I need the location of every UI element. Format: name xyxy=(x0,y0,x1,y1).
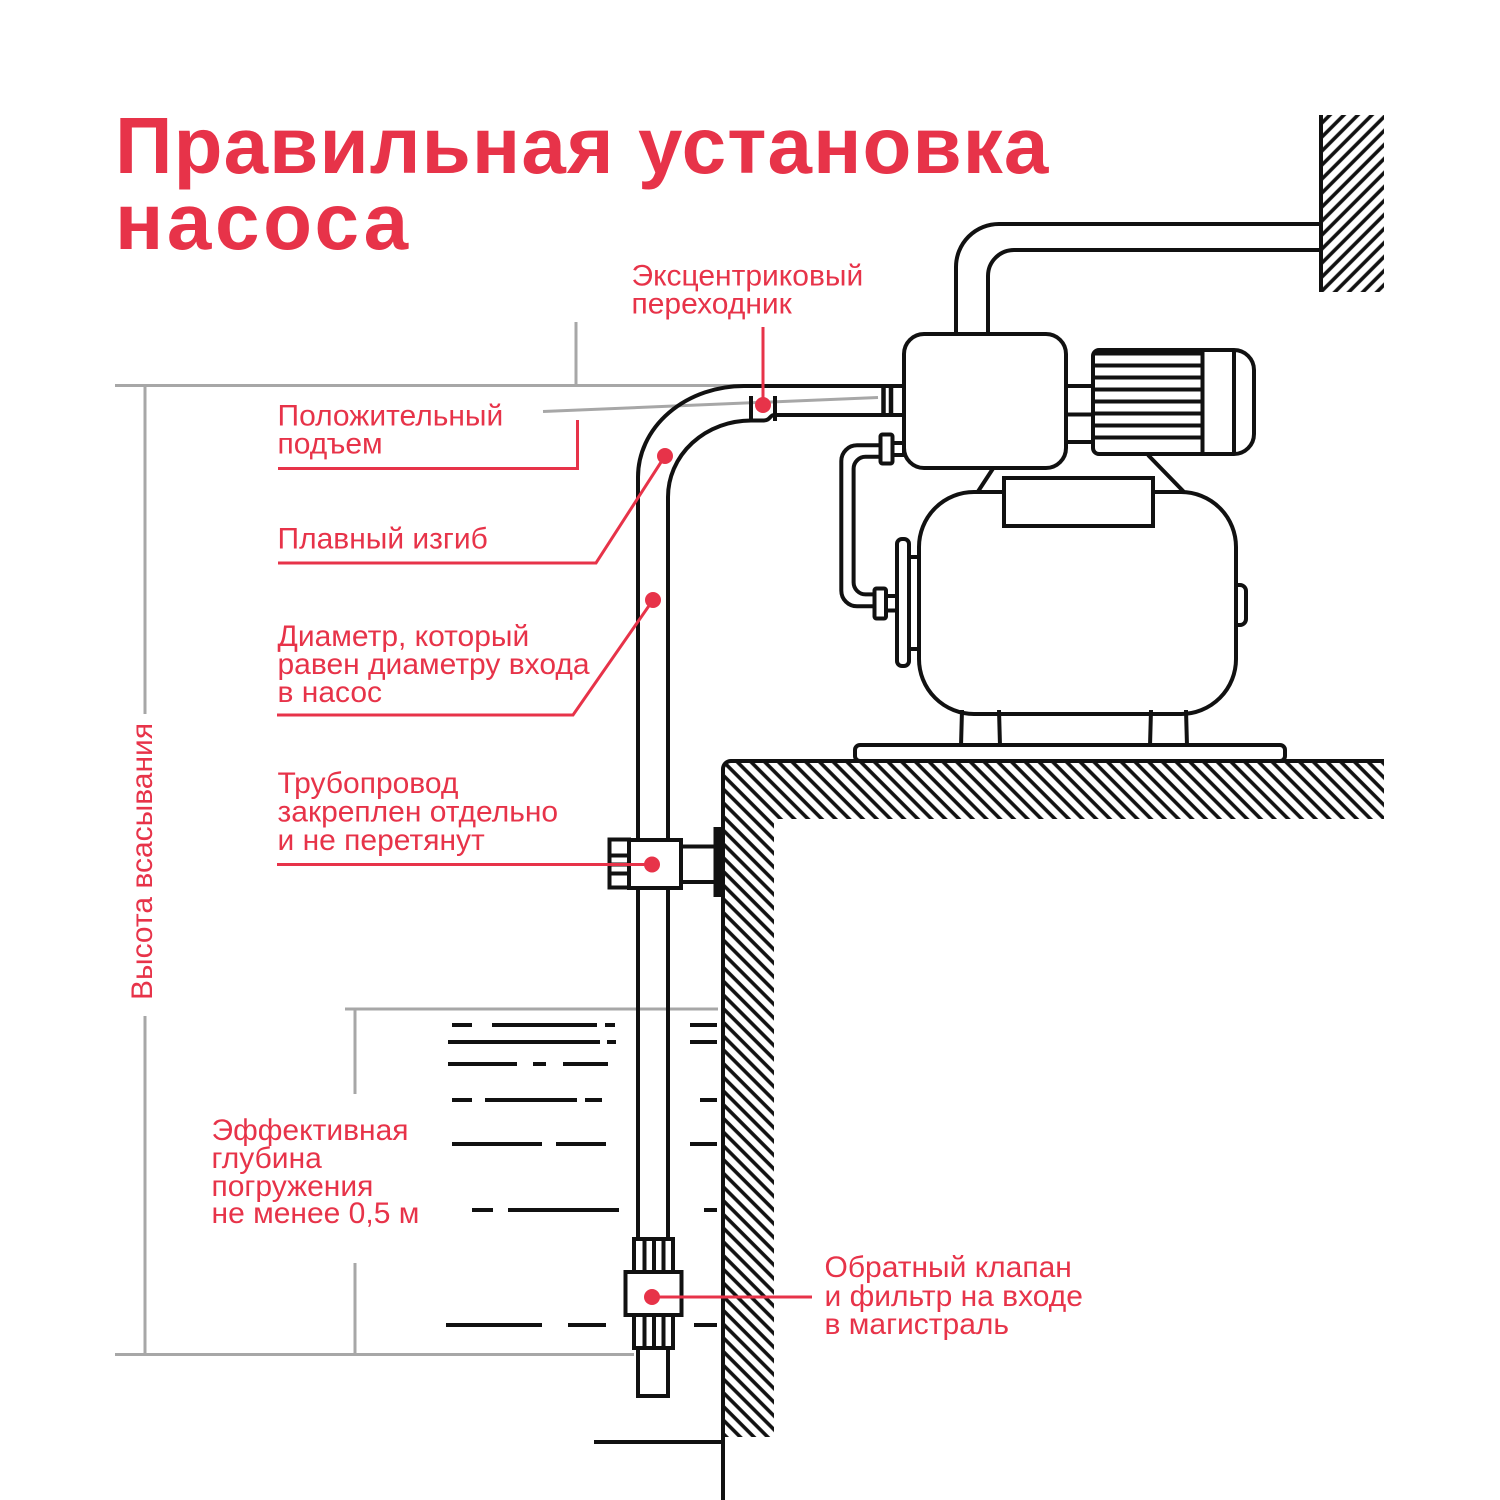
svg-text:и не перетянут: и не перетянут xyxy=(278,824,486,857)
svg-text:Плавный изгиб: Плавный изгиб xyxy=(278,523,488,556)
svg-text:подъем: подъем xyxy=(278,428,383,461)
svg-text:в магистраль: в магистраль xyxy=(825,1308,1010,1341)
svg-text:насоса: насоса xyxy=(115,177,412,266)
svg-text:в насос: в насос xyxy=(278,676,383,709)
svg-text:переходник: переходник xyxy=(632,288,793,321)
svg-text:Высота всасывания: Высота всасывания xyxy=(126,723,159,1000)
svg-text:не менее 0,5 м: не менее 0,5 м xyxy=(212,1197,420,1230)
